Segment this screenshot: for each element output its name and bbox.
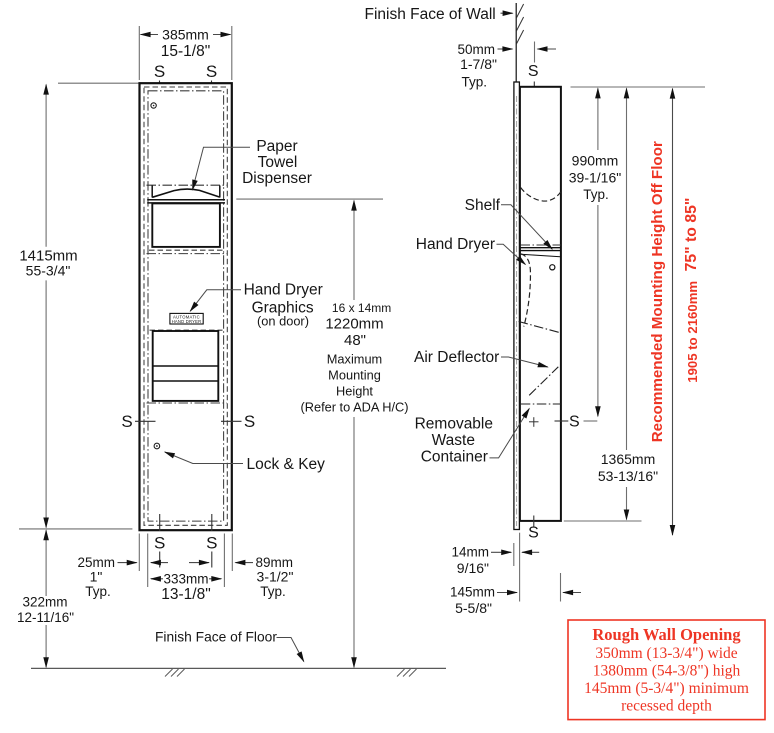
svg-text:recessed depth: recessed depth bbox=[621, 698, 712, 715]
svg-text:1-7/8": 1-7/8" bbox=[460, 56, 497, 72]
svg-text:S: S bbox=[206, 534, 217, 553]
svg-text:Typ.: Typ. bbox=[85, 584, 111, 599]
svg-text:385mm: 385mm bbox=[162, 27, 209, 43]
svg-text:53-13/16": 53-13/16" bbox=[598, 468, 658, 484]
svg-text:Typ.: Typ. bbox=[260, 584, 286, 599]
svg-text:75" to 85": 75" to 85" bbox=[683, 198, 700, 272]
svg-text:S: S bbox=[569, 414, 580, 431]
svg-text:Recommended Mounting Height Of: Recommended Mounting Height Off Floor bbox=[649, 141, 666, 442]
svg-text:55-3/4": 55-3/4" bbox=[26, 263, 71, 279]
svg-text:Maximum: Maximum bbox=[327, 352, 382, 367]
svg-text:Finish Face of Floor: Finish Face of Floor bbox=[155, 630, 277, 645]
svg-text:Shelf: Shelf bbox=[465, 197, 501, 214]
svg-text:Container: Container bbox=[421, 448, 488, 465]
svg-text:Waste: Waste bbox=[432, 432, 475, 449]
svg-text:5-5/8": 5-5/8" bbox=[455, 600, 492, 616]
svg-text:Paper: Paper bbox=[256, 138, 297, 155]
svg-text:39-1/16": 39-1/16" bbox=[569, 170, 621, 186]
svg-text:S: S bbox=[121, 412, 132, 431]
svg-text:S: S bbox=[528, 63, 539, 80]
svg-text:S: S bbox=[206, 62, 217, 81]
svg-text:Typ.: Typ. bbox=[583, 187, 609, 202]
svg-text:3-1/2": 3-1/2" bbox=[257, 569, 294, 585]
svg-text:1220mm: 1220mm bbox=[325, 316, 383, 333]
svg-text:Lock & Key: Lock & Key bbox=[247, 456, 326, 473]
svg-text:145mm: 145mm bbox=[450, 585, 495, 600]
svg-text:S: S bbox=[528, 525, 539, 542]
svg-text:145mm (5-3/4") minimum: 145mm (5-3/4") minimum bbox=[584, 680, 749, 697]
svg-text:1905 to 2160mm: 1905 to 2160mm bbox=[685, 281, 700, 383]
svg-text:1365mm: 1365mm bbox=[601, 451, 655, 467]
svg-text:S: S bbox=[154, 62, 165, 81]
svg-text:Finish Face of Wall: Finish Face of Wall bbox=[365, 6, 496, 23]
svg-text:12-11/16": 12-11/16" bbox=[17, 610, 74, 625]
svg-text:Typ.: Typ. bbox=[461, 75, 487, 90]
svg-text:S: S bbox=[154, 534, 165, 553]
svg-text:Mounting: Mounting bbox=[328, 368, 381, 383]
svg-text:9/16": 9/16" bbox=[457, 560, 489, 576]
svg-text:Rough Wall Opening: Rough Wall Opening bbox=[592, 625, 741, 644]
svg-text:Height: Height bbox=[336, 384, 373, 399]
svg-text:15-1/8": 15-1/8" bbox=[161, 43, 210, 60]
svg-text:Hand Dryer: Hand Dryer bbox=[416, 236, 495, 253]
svg-text:Removable: Removable bbox=[415, 416, 493, 433]
svg-text:HAND DRYER: HAND DRYER bbox=[172, 319, 202, 324]
svg-text:14mm: 14mm bbox=[451, 545, 489, 560]
svg-text:350mm (13-3/4") wide: 350mm (13-3/4") wide bbox=[595, 645, 737, 662]
svg-text:48": 48" bbox=[344, 332, 366, 349]
svg-text:S: S bbox=[244, 412, 255, 431]
svg-text:Dispenser: Dispenser bbox=[242, 170, 312, 187]
svg-text:Air Deflector: Air Deflector bbox=[414, 349, 499, 366]
svg-text:990mm: 990mm bbox=[572, 153, 619, 169]
svg-text:Towel: Towel bbox=[258, 154, 298, 171]
svg-text:13-1/8": 13-1/8" bbox=[161, 586, 210, 603]
svg-text:322mm: 322mm bbox=[22, 595, 67, 610]
svg-text:333mm: 333mm bbox=[163, 571, 208, 586]
svg-text:1380mm (54-3/8") high: 1380mm (54-3/8") high bbox=[593, 663, 741, 680]
svg-text:(on door): (on door) bbox=[257, 314, 309, 329]
svg-text:50mm: 50mm bbox=[457, 42, 495, 57]
svg-text:(Refer to ADA H/C): (Refer to ADA H/C) bbox=[300, 400, 408, 415]
svg-text:1": 1" bbox=[90, 569, 103, 585]
svg-text:Hand Dryer: Hand Dryer bbox=[244, 282, 323, 299]
svg-text:16 x 14mm: 16 x 14mm bbox=[332, 301, 391, 315]
